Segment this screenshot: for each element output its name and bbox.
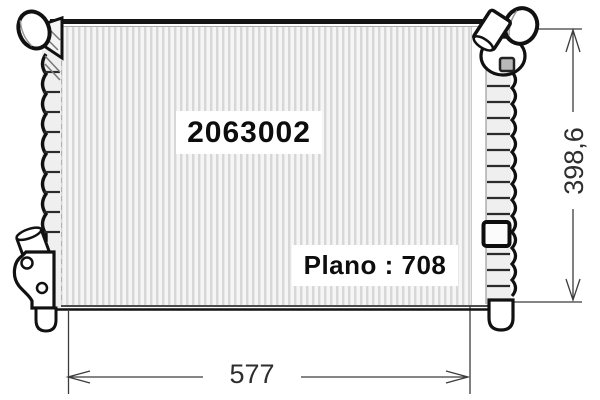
right-tank-edge [512, 72, 516, 296]
drain-plug [484, 222, 510, 246]
outlet-screw-top [22, 258, 33, 269]
top-header [50, 22, 510, 27]
radiator-line-art [0, 0, 600, 400]
part-number-label: 2063002 [176, 111, 322, 154]
inlet-square-fitting [500, 58, 514, 71]
right-tank [484, 70, 516, 305]
height-dimension-value: 398,6 [559, 106, 589, 216]
plano-label: Plano : 708 [292, 245, 458, 286]
top-right-inlet [471, 4, 542, 75]
radiator-technical-drawing: 2063002 Plano : 708 577 398,6 [0, 0, 600, 400]
bottom-header [54, 306, 504, 310]
width-dimension-value: 577 [202, 359, 302, 389]
right-foot-tab [489, 300, 513, 330]
outlet-screw-bottom [37, 283, 47, 293]
top-left-bracket [13, 7, 62, 58]
left-foot-tab [36, 308, 56, 331]
